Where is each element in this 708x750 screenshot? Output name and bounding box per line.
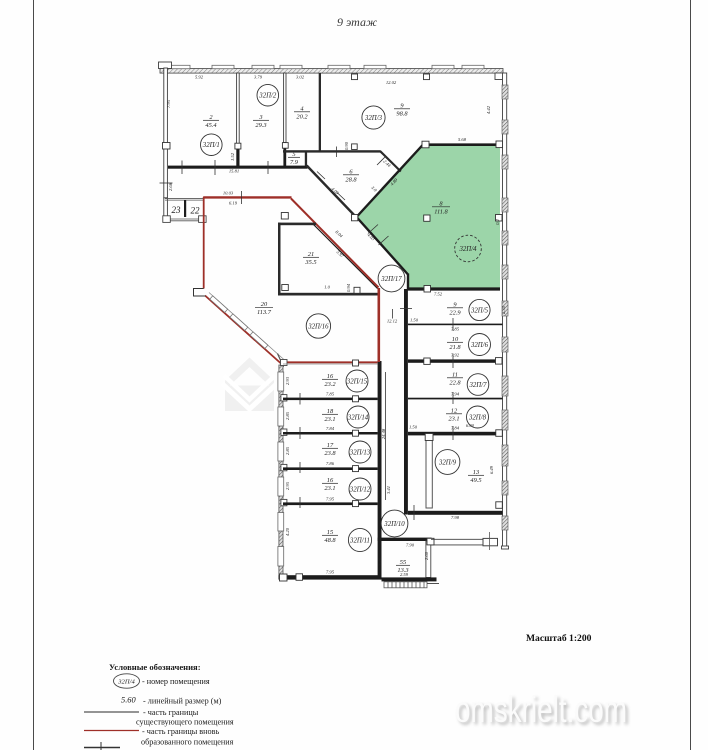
svg-text:7.52: 7.52 xyxy=(434,292,443,297)
svg-text:7.90: 7.90 xyxy=(406,543,415,548)
svg-text:111.8: 111.8 xyxy=(434,209,448,216)
svg-text:32П/14: 32П/14 xyxy=(347,415,369,422)
svg-text:7.98: 7.98 xyxy=(451,515,460,520)
svg-text:7.9: 7.9 xyxy=(290,159,299,166)
svg-text:32П/10: 32П/10 xyxy=(383,521,405,528)
svg-text:21.8: 21.8 xyxy=(449,344,461,351)
svg-text:113.7: 113.7 xyxy=(257,309,272,316)
svg-text:7.94: 7.94 xyxy=(451,392,460,397)
svg-text:- часть границы: - часть границы xyxy=(143,708,199,717)
svg-text:32П/17: 32П/17 xyxy=(380,276,402,283)
svg-text:5.60: 5.60 xyxy=(121,696,136,705)
svg-text:32П/9: 32П/9 xyxy=(438,460,457,467)
svg-text:98.8: 98.8 xyxy=(396,111,408,118)
svg-text:0.90: 0.90 xyxy=(344,141,349,150)
svg-text:2: 2 xyxy=(209,114,213,121)
svg-text:9: 9 xyxy=(400,103,404,110)
svg-text:7.95: 7.95 xyxy=(166,99,171,108)
svg-text:20.2: 20.2 xyxy=(296,114,308,121)
svg-text:7.95: 7.95 xyxy=(326,570,335,575)
svg-text:6.19: 6.19 xyxy=(229,201,238,206)
svg-text:32П/15: 32П/15 xyxy=(346,379,368,386)
svg-text:2.68: 2.68 xyxy=(168,182,173,191)
svg-text:23.2: 23.2 xyxy=(324,381,336,388)
svg-text:2.85: 2.85 xyxy=(285,446,290,455)
svg-text:0.2: 0.2 xyxy=(495,218,500,224)
svg-text:9 этаж: 9 этаж xyxy=(337,15,377,29)
svg-text:0.94: 0.94 xyxy=(346,283,351,292)
svg-text:7.95: 7.95 xyxy=(326,496,335,501)
svg-text:12.12: 12.12 xyxy=(387,319,398,324)
svg-text:omskrielt.com: omskrielt.com xyxy=(455,689,627,730)
svg-text:35.5: 35.5 xyxy=(304,259,316,266)
svg-text:23: 23 xyxy=(172,205,182,215)
svg-text:7.85: 7.85 xyxy=(326,392,335,397)
svg-text:6.49: 6.49 xyxy=(489,465,494,474)
svg-text:32П/16: 32П/16 xyxy=(307,324,329,331)
svg-text:1.50: 1.50 xyxy=(410,318,419,323)
svg-text:28.8: 28.8 xyxy=(345,177,357,184)
svg-text:32П/7: 32П/7 xyxy=(469,382,488,389)
svg-text:32П/2: 32П/2 xyxy=(258,93,277,100)
svg-text:32П/5: 32П/5 xyxy=(470,308,489,315)
svg-text:Масштаб 1:200: Масштаб 1:200 xyxy=(526,633,592,644)
svg-text:1.0: 1.0 xyxy=(324,285,330,290)
svg-text:7.84: 7.84 xyxy=(326,426,335,431)
svg-text:22.8: 22.8 xyxy=(449,380,461,387)
svg-text:32П/3: 32П/3 xyxy=(364,115,383,122)
svg-text:3.79: 3.79 xyxy=(254,75,263,80)
svg-text:2.93: 2.93 xyxy=(285,376,290,385)
svg-text:32П/11: 32П/11 xyxy=(349,538,370,545)
svg-text:2.60: 2.60 xyxy=(424,551,429,560)
svg-text:7.84: 7.84 xyxy=(451,426,460,431)
svg-text:22.9: 22.9 xyxy=(449,310,461,317)
svg-text:23.1: 23.1 xyxy=(324,485,335,492)
svg-text:2.30: 2.30 xyxy=(501,305,506,314)
svg-text:22: 22 xyxy=(191,206,201,216)
svg-text:- линейный размер (м): - линейный размер (м) xyxy=(143,697,222,706)
svg-text:32П/1: 32П/1 xyxy=(202,142,220,149)
svg-text:7.92: 7.92 xyxy=(451,353,460,358)
svg-text:существующего помещения: существующего помещения xyxy=(136,718,234,727)
svg-text:3.26: 3.26 xyxy=(377,557,382,566)
svg-text:15.81: 15.81 xyxy=(229,169,239,174)
svg-text:32П/6: 32П/6 xyxy=(470,342,489,349)
svg-text:5.92: 5.92 xyxy=(195,75,204,80)
svg-text:48.8: 48.8 xyxy=(324,537,336,544)
svg-text:23.1: 23.1 xyxy=(324,416,335,423)
svg-text:образованного помещения: образованного помещения xyxy=(141,738,234,747)
svg-text:32П/12: 32П/12 xyxy=(349,487,371,494)
svg-text:32П/4: 32П/4 xyxy=(459,246,478,253)
svg-text:29.3: 29.3 xyxy=(255,122,266,129)
svg-text:8.04: 8.04 xyxy=(334,229,344,239)
svg-text:2.59: 2.59 xyxy=(400,572,409,577)
svg-text:32П/4: 32П/4 xyxy=(117,679,135,686)
svg-text:5.68: 5.68 xyxy=(458,137,467,142)
svg-text:49.5: 49.5 xyxy=(470,477,481,484)
svg-text:3.41: 3.41 xyxy=(386,486,391,494)
svg-text:45.4: 45.4 xyxy=(205,122,217,129)
svg-text:3.02: 3.02 xyxy=(296,75,305,80)
svg-text:7.85: 7.85 xyxy=(451,327,460,332)
svg-text:32П/13: 32П/13 xyxy=(349,450,371,457)
svg-text:2.85: 2.85 xyxy=(285,411,290,420)
svg-text:- номер помещения: - номер помещения xyxy=(142,677,210,686)
svg-text:23.1: 23.1 xyxy=(448,416,459,423)
svg-text:- часть границы вновь: - часть границы вновь xyxy=(142,727,220,736)
svg-text:2.95: 2.95 xyxy=(285,481,290,490)
svg-text:32П/8: 32П/8 xyxy=(468,415,487,422)
svg-text:Условные обозначения:: Условные обозначения: xyxy=(109,662,201,672)
svg-text:12.02: 12.02 xyxy=(386,80,397,85)
svg-text:1.50: 1.50 xyxy=(409,425,418,430)
svg-text:3: 3 xyxy=(258,114,262,121)
svg-text:7.86: 7.86 xyxy=(326,461,335,466)
svg-text:10.03: 10.03 xyxy=(223,191,234,196)
svg-text:6.00: 6.00 xyxy=(466,423,475,428)
svg-text:4.42: 4.42 xyxy=(486,105,491,114)
svg-text:4.20: 4.20 xyxy=(285,527,290,536)
svg-text:3.0: 3.0 xyxy=(370,185,378,193)
svg-text:4: 4 xyxy=(300,106,304,113)
svg-text:23.8: 23.8 xyxy=(324,450,336,457)
svg-text:24.48: 24.48 xyxy=(381,428,386,439)
svg-text:1.52: 1.52 xyxy=(230,152,235,161)
